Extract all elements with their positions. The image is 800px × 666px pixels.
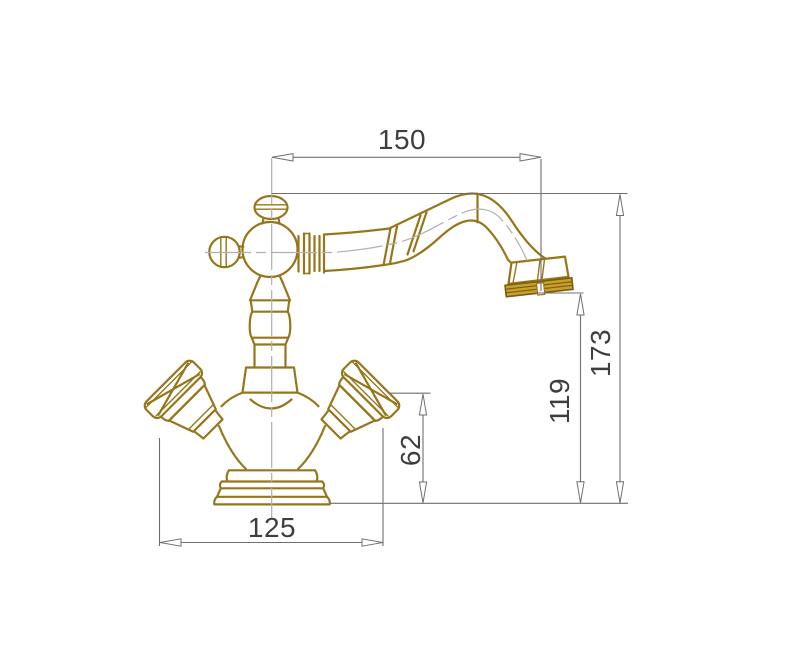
dimension-label-overall-height: 173 — [587, 329, 615, 377]
valve-body — [209, 196, 297, 277]
valve-sphere — [243, 222, 298, 277]
top-screw-knob — [255, 196, 288, 219]
column — [243, 274, 298, 393]
dimension-spout-reach — [272, 154, 541, 291]
dimension-label-handle-top-height: 62 — [397, 434, 425, 466]
spout — [299, 194, 574, 297]
dimension-label-body-width: 125 — [248, 514, 296, 542]
mounting-nut — [243, 368, 298, 393]
faucet-line-art — [0, 0, 800, 666]
dimension-label-spout-reach: 150 — [378, 126, 426, 154]
right-cross-handle — [307, 358, 401, 452]
faucet-drawing — [142, 194, 573, 505]
dimension-overall-height — [272, 194, 628, 503]
aerator-outlet — [505, 257, 573, 297]
technical-drawing-canvas: 150 173 119 62 125 — [0, 0, 800, 666]
dimension-label-spout-outlet-height: 119 — [546, 378, 574, 424]
